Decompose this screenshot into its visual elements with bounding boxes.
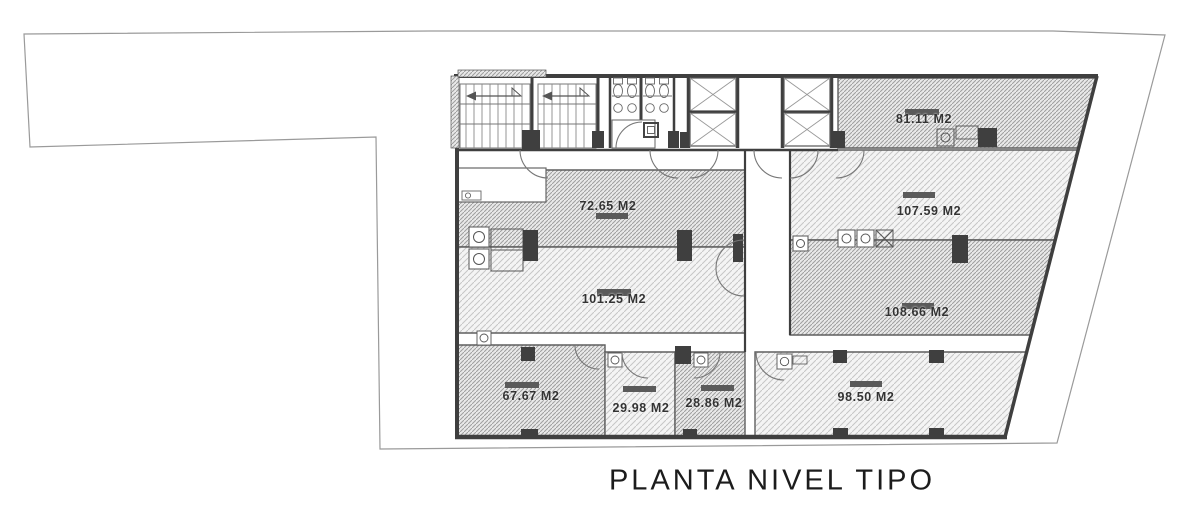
room-area-label-mid-left: 101.25 M2: [582, 292, 646, 306]
toilet-icon: [646, 78, 655, 98]
floor-plan-drawing: 81.11 M2 72.65 M2 107.59 M2 101.25 M2 10…: [0, 0, 1200, 507]
stair-right-icon: [538, 84, 596, 148]
toilet-icon: [614, 78, 623, 98]
elevator-bank-right: [783, 78, 831, 146]
room-area-label-upper-right: 107.59 M2: [897, 204, 961, 218]
room-area-label-bottom-small-2: 28.86 M2: [686, 396, 743, 410]
sink-icon: [477, 331, 491, 345]
toilet-icon: [660, 78, 669, 98]
sink-icon: [608, 353, 622, 367]
room-area-label-top-right: 81.11 M2: [896, 112, 952, 126]
room-bottom-small-office-2: [675, 352, 745, 437]
room-top-right-office: [838, 78, 1096, 148]
floor-plan-canvas: [0, 0, 1200, 507]
room-area-label-mid-right: 108.66 M2: [885, 305, 949, 319]
toilet-icon: [628, 78, 637, 98]
elevator-bank-left: [689, 78, 737, 146]
room-mid-right-office: [790, 240, 1055, 335]
stair-left-icon: [460, 84, 530, 148]
room-area-label-bottom-small-1: 29.98 M2: [613, 401, 670, 415]
sink-icon: [694, 353, 708, 367]
room-area-label-upper-left: 72.65 M2: [580, 199, 637, 213]
plan-title: PLANTA NIVEL TIPO: [609, 465, 935, 498]
room-area-label-bottom-left: 67.67 M2: [503, 389, 560, 403]
room-area-label-bottom-right: 98.50 M2: [838, 390, 895, 404]
